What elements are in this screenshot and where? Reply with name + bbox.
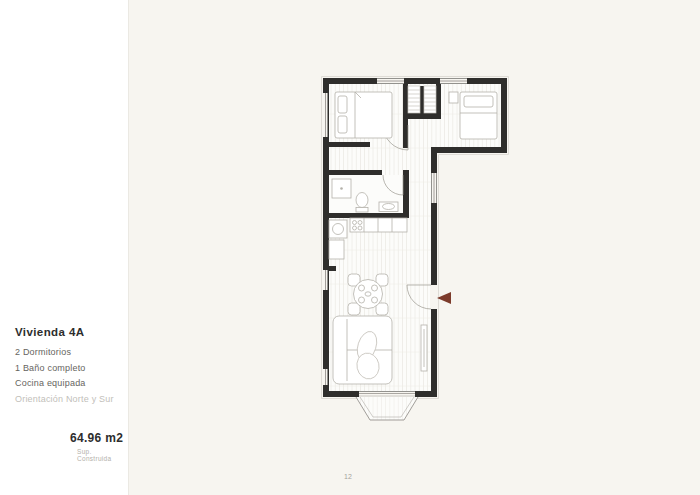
dining-table — [348, 274, 388, 315]
floor-plan-drawing — [318, 63, 513, 433]
entrance-arrow-icon — [437, 292, 451, 304]
info-panel: Vivienda 4A 2 Dormitorios 1 Baño complet… — [0, 0, 129, 495]
orientation-note: Orientación Norte y Sur — [15, 394, 125, 404]
bay-window — [356, 397, 418, 420]
page-title: Vivienda 4A — [15, 326, 125, 338]
area-block: 64.96 m2 Sup. Construida — [70, 431, 128, 462]
feature-bathroom: 1 Baño completo — [15, 363, 125, 373]
feature-bedrooms: 2 Dormitorios — [15, 347, 125, 357]
floor-plan — [318, 63, 513, 433]
sofa — [333, 316, 392, 384]
property-info: Vivienda 4A 2 Dormitorios 1 Baño complet… — [15, 326, 125, 404]
tv-console — [421, 325, 427, 371]
double-bed — [335, 92, 392, 138]
area-label: Sup. Construida — [77, 448, 128, 462]
area-value: 64.96 m2 — [70, 431, 128, 445]
feature-kitchen: Cocina equipada — [15, 378, 125, 388]
page-number: 12 — [340, 473, 356, 480]
